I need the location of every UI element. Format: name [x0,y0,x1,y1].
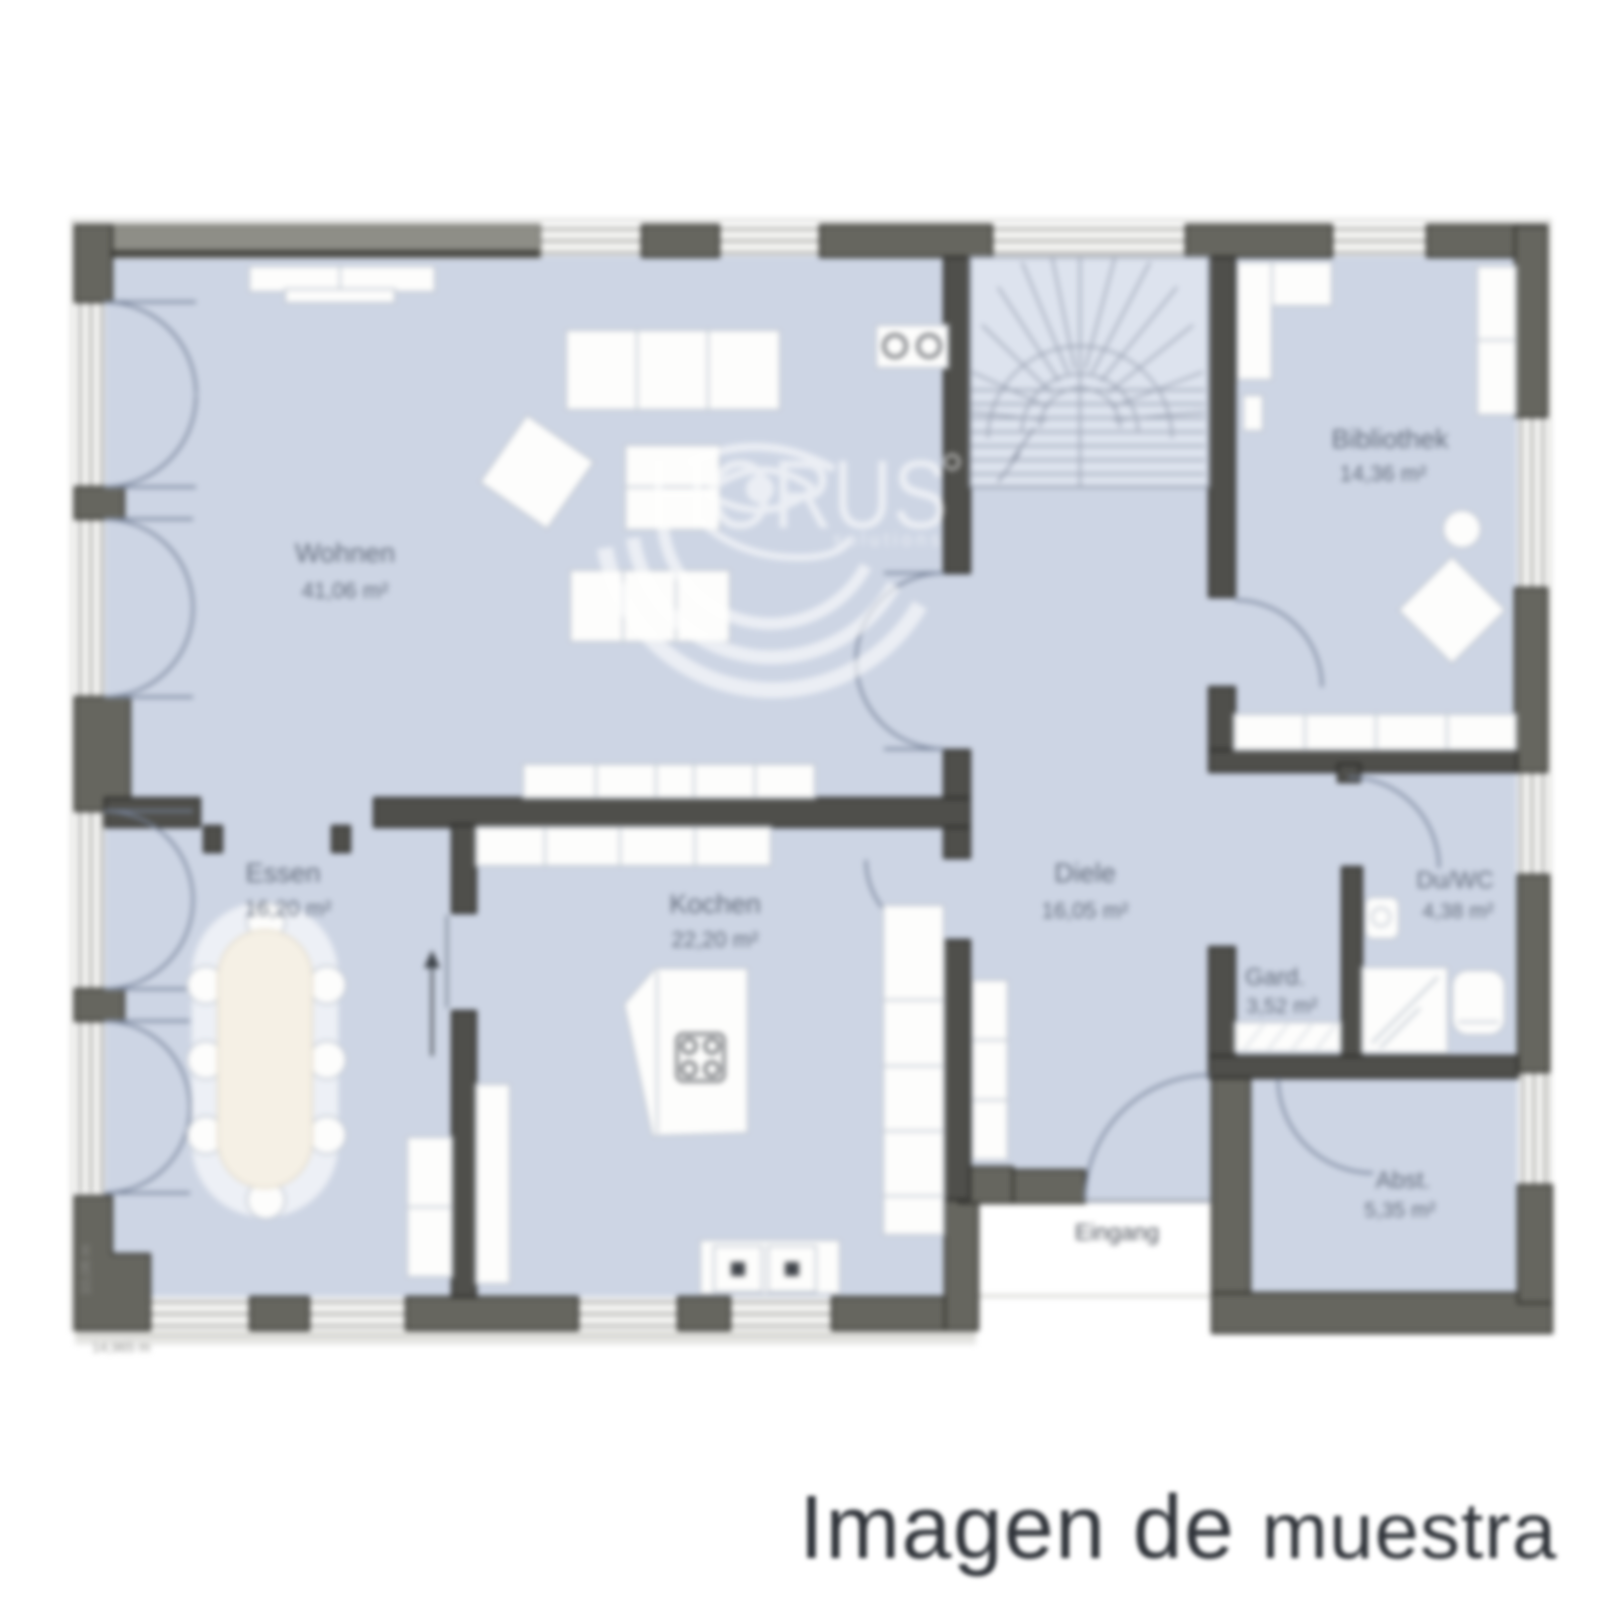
svg-text:Diele: Diele [1054,858,1116,888]
svg-text:16,20 m²: 16,20 m² [245,896,332,921]
svg-text:Wohnen: Wohnen [295,538,395,568]
svg-text:4,38 m²: 4,38 m² [1422,900,1493,923]
svg-text:Du/WC: Du/WC [1416,867,1493,894]
svg-text:Bibliothek: Bibliothek [1331,424,1449,454]
svg-text:22,20 m²: 22,20 m² [672,927,759,952]
svg-text:3,52 m²: 3,52 m² [1246,995,1317,1018]
svg-text:14,965 m: 14,965 m [92,1339,150,1355]
svg-text:16,05 m²: 16,05 m² [1042,898,1129,923]
svg-text:solutions: solutions [833,530,944,551]
svg-text:Essen: Essen [245,858,320,888]
svg-text:Eingang: Eingang [1075,1219,1159,1245]
svg-text:Abst.: Abst. [1376,1167,1431,1194]
svg-text:Kochen: Kochen [669,889,761,919]
svg-text:41,06 m²: 41,06 m² [302,578,389,603]
svg-text:Gard.: Gard. [1245,964,1305,991]
svg-text:14,36 m²: 14,36 m² [1340,461,1427,486]
svg-text:5,35 m²: 5,35 m² [1364,1199,1435,1222]
svg-text:10,06 m: 10,06 m [77,1244,93,1295]
